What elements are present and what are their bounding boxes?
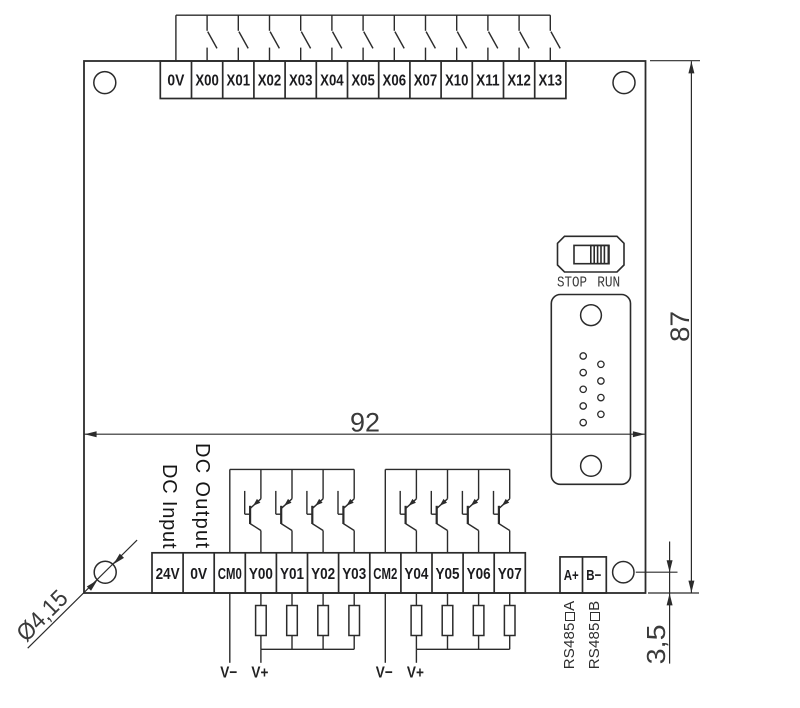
svg-text:0V: 0V	[167, 73, 184, 90]
svg-text:X04: X04	[320, 73, 344, 90]
svg-text:Y07: Y07	[498, 566, 522, 583]
svg-text:24V: 24V	[156, 566, 180, 583]
svg-text:DC Output: DC Output	[191, 443, 213, 548]
svg-text:DC Input: DC Input	[158, 464, 180, 549]
svg-text:CM0: CM0	[218, 566, 242, 583]
svg-text:V−: V−	[376, 664, 393, 681]
svg-text:X05: X05	[351, 73, 375, 90]
svg-text:X02: X02	[258, 73, 282, 90]
svg-text:X12: X12	[507, 73, 531, 90]
svg-text:Y03: Y03	[342, 566, 366, 583]
svg-text:Y01: Y01	[280, 566, 304, 583]
svg-text:Y05: Y05	[436, 566, 460, 583]
svg-text:V−: V−	[220, 664, 237, 681]
svg-text:92: 92	[350, 407, 380, 437]
svg-text:Y06: Y06	[467, 566, 491, 583]
svg-text:X03: X03	[289, 73, 313, 90]
svg-text:X13: X13	[539, 73, 563, 90]
svg-text:87: 87	[665, 311, 695, 342]
svg-text:X01: X01	[227, 73, 251, 90]
svg-text:X07: X07	[414, 73, 438, 90]
svg-text:X06: X06	[383, 73, 407, 90]
svg-text:V+: V+	[251, 664, 268, 681]
svg-text:X11: X11	[476, 73, 500, 90]
svg-text:X00: X00	[195, 73, 219, 90]
svg-text:STOP: STOP	[557, 275, 587, 292]
svg-text:3,5: 3,5	[641, 624, 671, 664]
svg-text:RUN: RUN	[597, 275, 620, 292]
svg-text:Y04: Y04	[404, 566, 428, 583]
svg-text:0V: 0V	[190, 566, 207, 583]
svg-text:Ø4,15: Ø4,15	[11, 585, 73, 647]
svg-text:V+: V+	[407, 664, 424, 681]
svg-text:Y00: Y00	[249, 566, 273, 583]
svg-text:CM2: CM2	[373, 566, 397, 583]
svg-text:X10: X10	[445, 73, 469, 90]
svg-text:Y02: Y02	[311, 566, 335, 583]
